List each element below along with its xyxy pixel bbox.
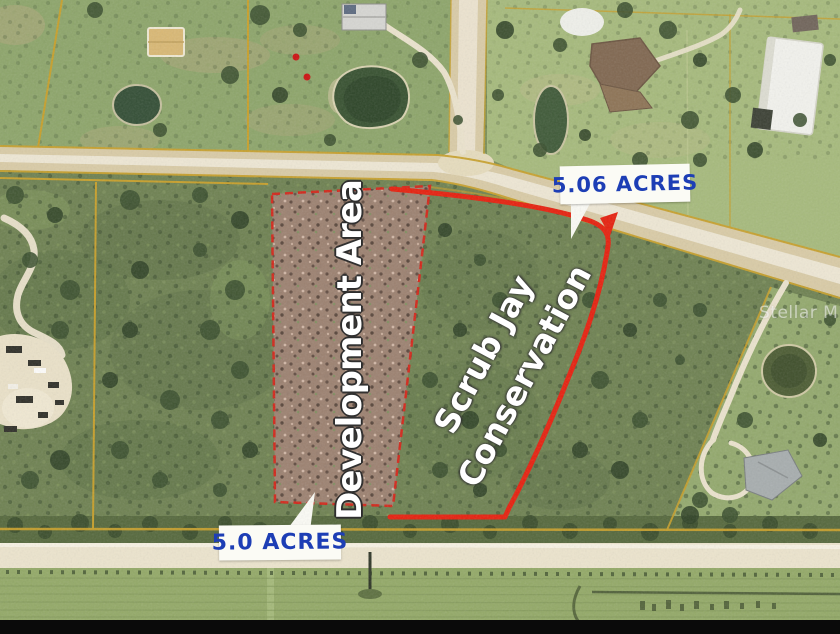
aerial-scene xyxy=(0,0,840,634)
aerial-property-photo: 5.06 ACRES 5.0 ACRES Development Area Sc… xyxy=(0,0,840,634)
acreage-callout-bottom: 5.0 ACRES xyxy=(219,524,341,560)
mls-watermark: Stellar MLS xyxy=(759,303,840,323)
letterbox-bar xyxy=(0,620,840,634)
acreage-callout-top: 5.06 ACRES xyxy=(560,164,691,205)
acreage-label-bottom: 5.0 ACRES xyxy=(212,529,349,555)
photo-grain xyxy=(0,0,840,634)
acreage-label-top: 5.06 ACRES xyxy=(552,170,699,197)
development-area-label: Development Area xyxy=(330,180,370,520)
